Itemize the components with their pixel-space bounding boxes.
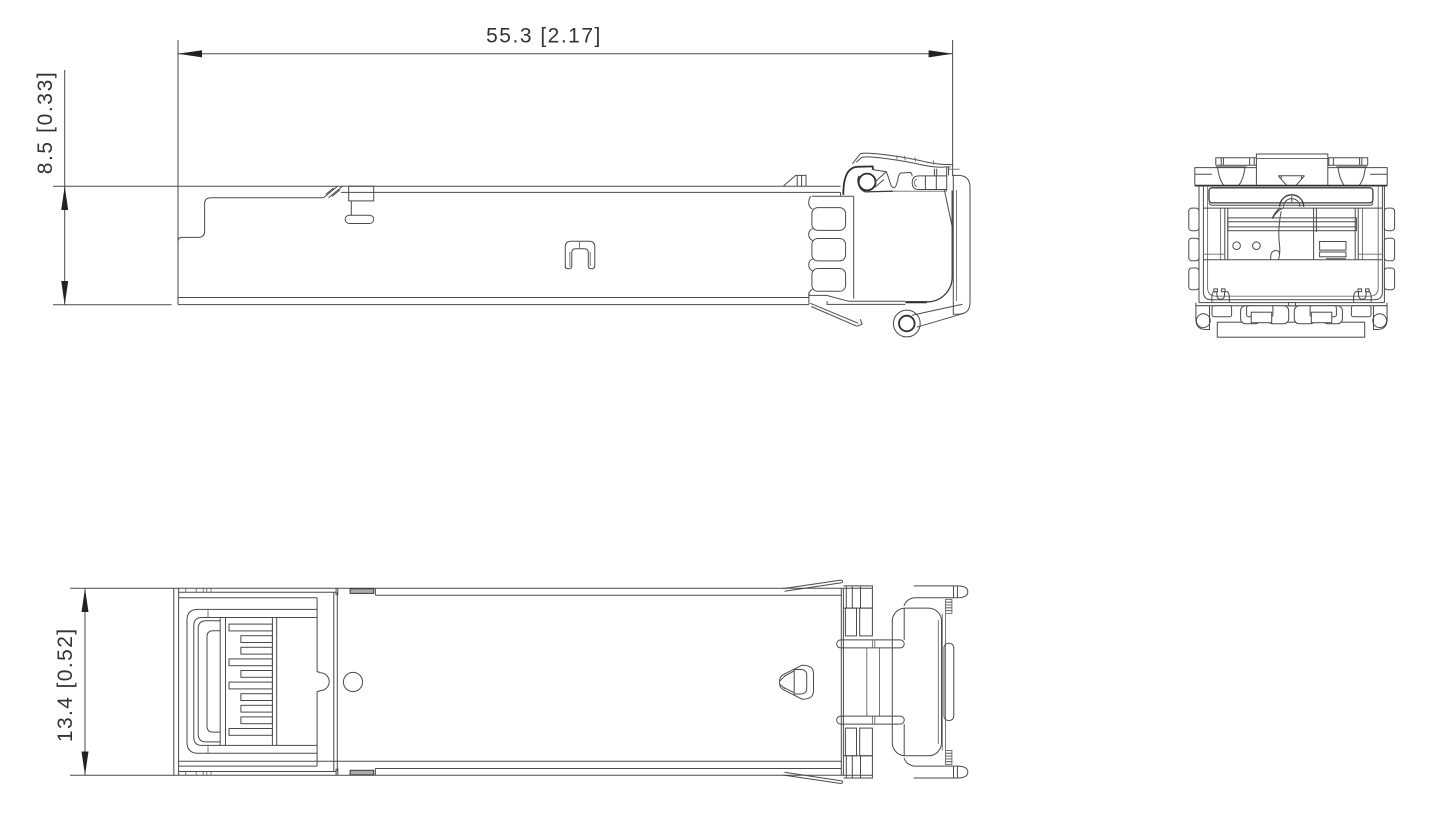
svg-text:55.3 [2.17]: 55.3 [2.17] (486, 25, 602, 48)
svg-text:8.5 [0.33]: 8.5 [0.33] (34, 71, 57, 175)
svg-text:13.4 [0.52]: 13.4 [0.52] (54, 627, 77, 742)
